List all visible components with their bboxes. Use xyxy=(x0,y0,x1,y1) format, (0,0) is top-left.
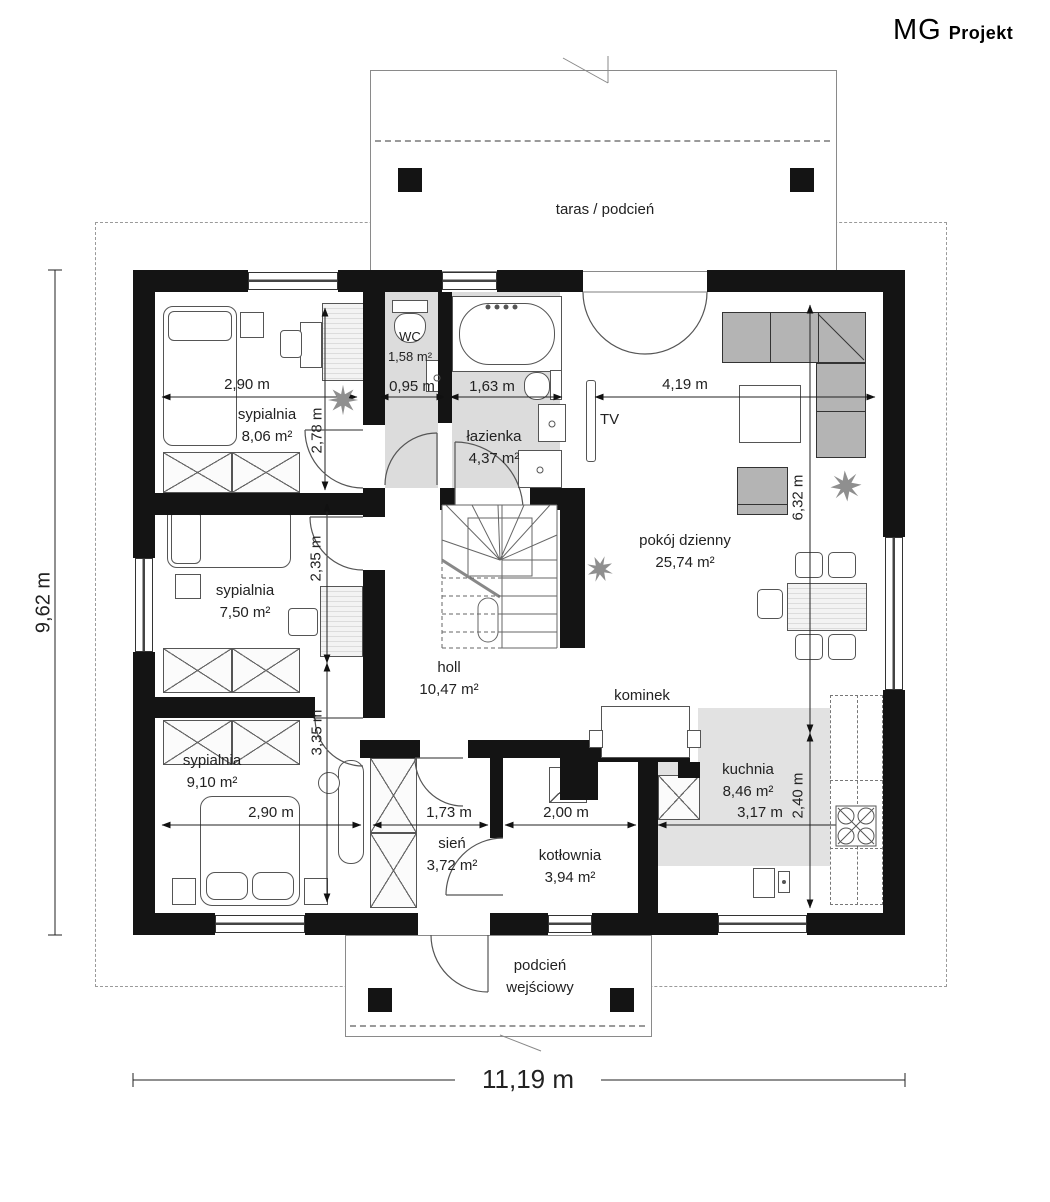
bed-pillow xyxy=(206,872,248,900)
terrace-column xyxy=(790,168,814,192)
bed-pillow xyxy=(171,510,201,564)
wall-segment xyxy=(363,488,385,517)
wardrobe xyxy=(163,648,232,693)
dim-label: 6,32 m xyxy=(790,463,807,533)
dim-label: 2,35 m xyxy=(308,524,325,594)
counter-line xyxy=(857,695,858,905)
room-label-sien: sień 3,72 m² xyxy=(402,833,502,877)
wall-segment xyxy=(807,913,905,935)
chair xyxy=(280,330,302,358)
wall-segment xyxy=(133,652,155,935)
logo-mg: MG xyxy=(893,14,942,47)
window xyxy=(442,272,497,290)
wall-segment xyxy=(338,270,442,292)
bathtub-basin xyxy=(459,303,555,365)
room-label-kotlownia: kotłownia 3,94 m² xyxy=(505,845,635,889)
dim-label: 4,19 m xyxy=(650,376,720,393)
sofa xyxy=(722,312,866,363)
tv xyxy=(586,380,596,462)
window xyxy=(135,558,153,652)
dim-label-overall-width: 11,19 m xyxy=(455,1064,601,1095)
porch-column xyxy=(368,988,392,1012)
chair xyxy=(828,552,856,578)
chair xyxy=(757,589,783,619)
bed-pillow xyxy=(168,311,232,341)
terrace-column xyxy=(398,168,422,192)
wall-segment xyxy=(363,672,385,718)
wall-segment xyxy=(592,913,718,935)
kitchen-sink xyxy=(778,871,790,893)
dim-label: 2,00 m xyxy=(531,804,601,821)
dim-label: 2,90 m xyxy=(212,376,282,393)
wall-segment xyxy=(363,570,385,672)
window xyxy=(718,915,807,933)
dining-table xyxy=(787,583,867,631)
fireplace-side xyxy=(589,730,603,748)
wall-segment xyxy=(133,913,215,935)
room-label-sypialnia-2: sypialnia 7,50 m² xyxy=(180,580,310,624)
fireplace-label: kominek xyxy=(592,687,692,704)
fireplace-side xyxy=(687,730,701,748)
wardrobe xyxy=(322,303,367,381)
dim-label: 1,73 m xyxy=(414,804,484,821)
dim-label: 3,17 m xyxy=(725,804,795,821)
wall-segment xyxy=(360,740,420,758)
wardrobe xyxy=(232,452,300,493)
fireplace xyxy=(601,706,690,758)
room-label-sypialnia-3: sypialnia 9,10 m² xyxy=(147,750,277,794)
tv-label: TV xyxy=(600,411,644,428)
dim-label: 2,90 m xyxy=(236,804,306,821)
chair xyxy=(828,634,856,660)
wall-segment xyxy=(490,913,548,935)
wall-segment xyxy=(707,270,905,292)
wall-segment xyxy=(440,488,455,510)
sofa xyxy=(816,363,866,458)
room-label-wc: WC 1,58 m² xyxy=(378,327,442,366)
dim-label: 0,95 m xyxy=(377,378,447,395)
dim-label: 2,78 m xyxy=(309,396,326,466)
brand-logo: MG Projekt xyxy=(893,14,1013,47)
wall-segment xyxy=(133,493,363,515)
floor-plan: MG Projekt xyxy=(0,0,1050,1202)
wardrobe xyxy=(163,452,232,493)
room-label-pokoj-dzienny: pokój dzienny 25,74 m² xyxy=(615,530,755,574)
room-label-holl: holl 10,47 m² xyxy=(399,657,499,701)
wall-segment xyxy=(560,490,585,648)
side-table xyxy=(240,312,264,338)
logo-projekt: Projekt xyxy=(949,23,1014,44)
wall-segment xyxy=(638,753,658,913)
window xyxy=(248,272,338,290)
wall-segment xyxy=(497,270,583,292)
wardrobe xyxy=(370,758,417,833)
nightstand xyxy=(304,878,328,905)
wardrobe xyxy=(320,586,363,657)
terrace-dashed-line xyxy=(375,140,830,142)
lamp xyxy=(318,772,340,794)
dim-label: 1,63 m xyxy=(457,378,527,395)
toilet xyxy=(524,372,550,400)
chair xyxy=(795,634,823,660)
armchair xyxy=(737,467,788,515)
window xyxy=(885,537,903,690)
porch-label: podcień wejściowy xyxy=(460,955,620,999)
wall-segment xyxy=(305,913,418,935)
room-label-lazienka: łazienka 4,37 m² xyxy=(429,426,559,470)
wall-segment xyxy=(883,270,905,537)
wall-segment xyxy=(883,690,905,935)
counter-line xyxy=(830,780,883,781)
toilet-tank xyxy=(550,370,562,400)
terrace-label: taras / podcień xyxy=(505,199,705,221)
nightstand xyxy=(172,878,196,905)
terrace-outline xyxy=(370,70,837,272)
armchair xyxy=(338,760,364,864)
coffee-table xyxy=(739,385,801,443)
porch-dashed-line xyxy=(350,1025,645,1027)
window xyxy=(548,915,592,933)
bed-pillow xyxy=(252,872,294,900)
wall-segment xyxy=(490,758,503,838)
desk xyxy=(300,322,322,368)
toilet-tank xyxy=(392,300,428,313)
wall-segment xyxy=(133,697,315,718)
wall-segment xyxy=(560,740,598,800)
dim-label-overall-height: 9,62 m xyxy=(33,563,56,643)
window xyxy=(215,915,305,933)
dim-label: 3,35 m xyxy=(309,698,326,768)
fridge xyxy=(753,868,775,898)
wardrobe xyxy=(232,648,300,693)
kitchen-floor xyxy=(698,708,832,762)
chair xyxy=(795,552,823,578)
counter-line xyxy=(830,848,883,849)
